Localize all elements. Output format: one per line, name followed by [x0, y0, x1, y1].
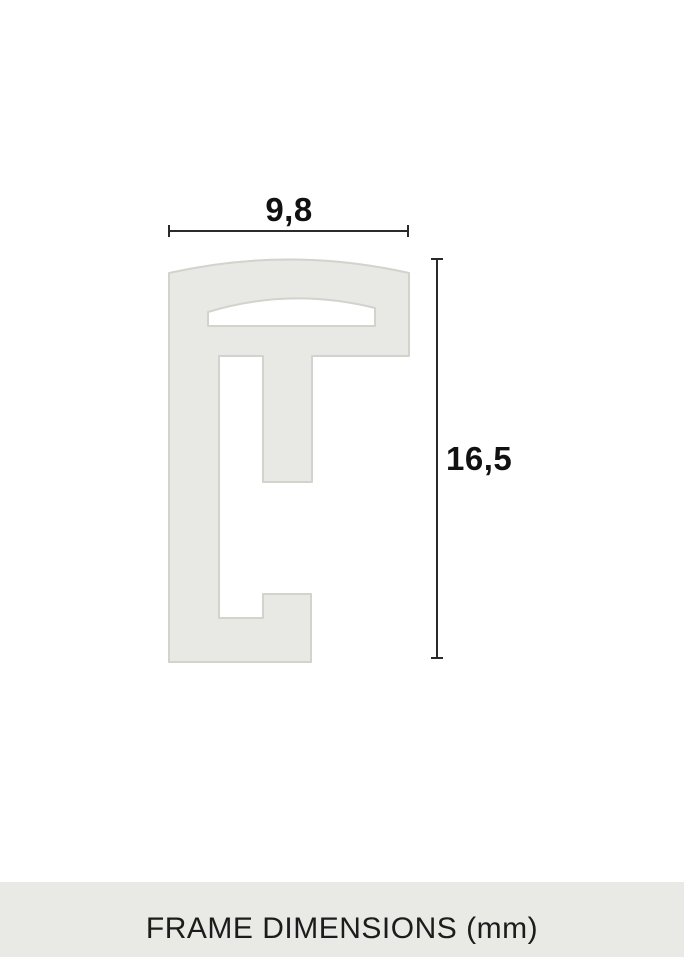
width-dimension-label: 9,8: [265, 191, 312, 228]
caption-band: FRAME DIMENSIONS (mm): [0, 882, 684, 957]
caption-text: FRAME DIMENSIONS (mm): [146, 912, 538, 946]
product-diagram-page: 9,8 16,5 FRAME DIMENSIONS (mm): [0, 0, 684, 957]
frame-profile-diagram: 9,8 16,5: [0, 0, 684, 957]
frame-profile-shape: [169, 260, 409, 663]
height-dimension-label: 16,5: [446, 440, 512, 477]
